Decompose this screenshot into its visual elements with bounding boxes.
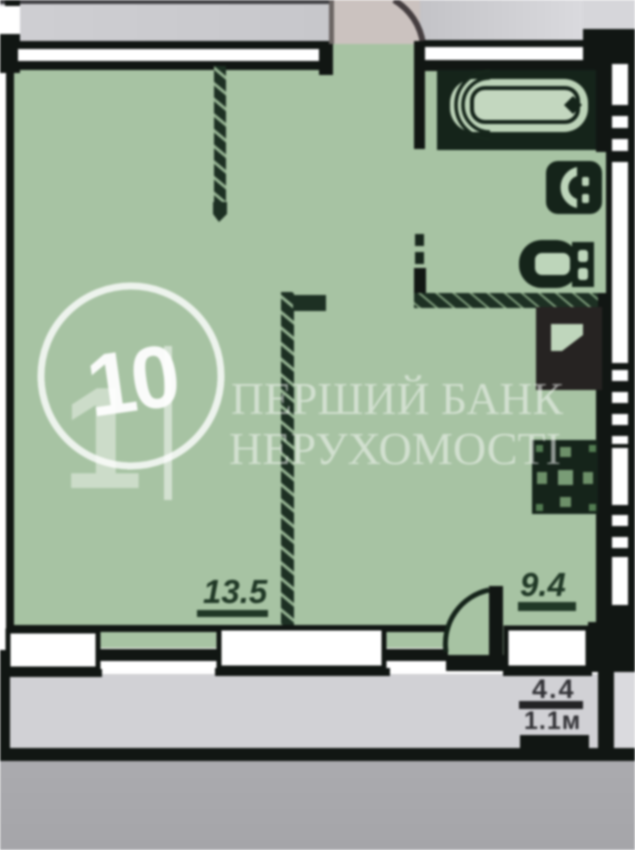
svg-text:10: 10	[81, 325, 184, 436]
svg-text:9.4: 9.4	[520, 566, 566, 603]
svg-text:1.1м: 1.1м	[524, 707, 581, 735]
svg-text:13.5: 13.5	[203, 573, 268, 610]
svg-text:ПЕРШИЙ БАНК: ПЕРШИЙ БАНК	[231, 373, 563, 424]
svg-text:НЕРУХОМОСТІ: НЕРУХОМОСТІ	[229, 423, 561, 474]
svg-text:4.4: 4.4	[532, 674, 576, 704]
